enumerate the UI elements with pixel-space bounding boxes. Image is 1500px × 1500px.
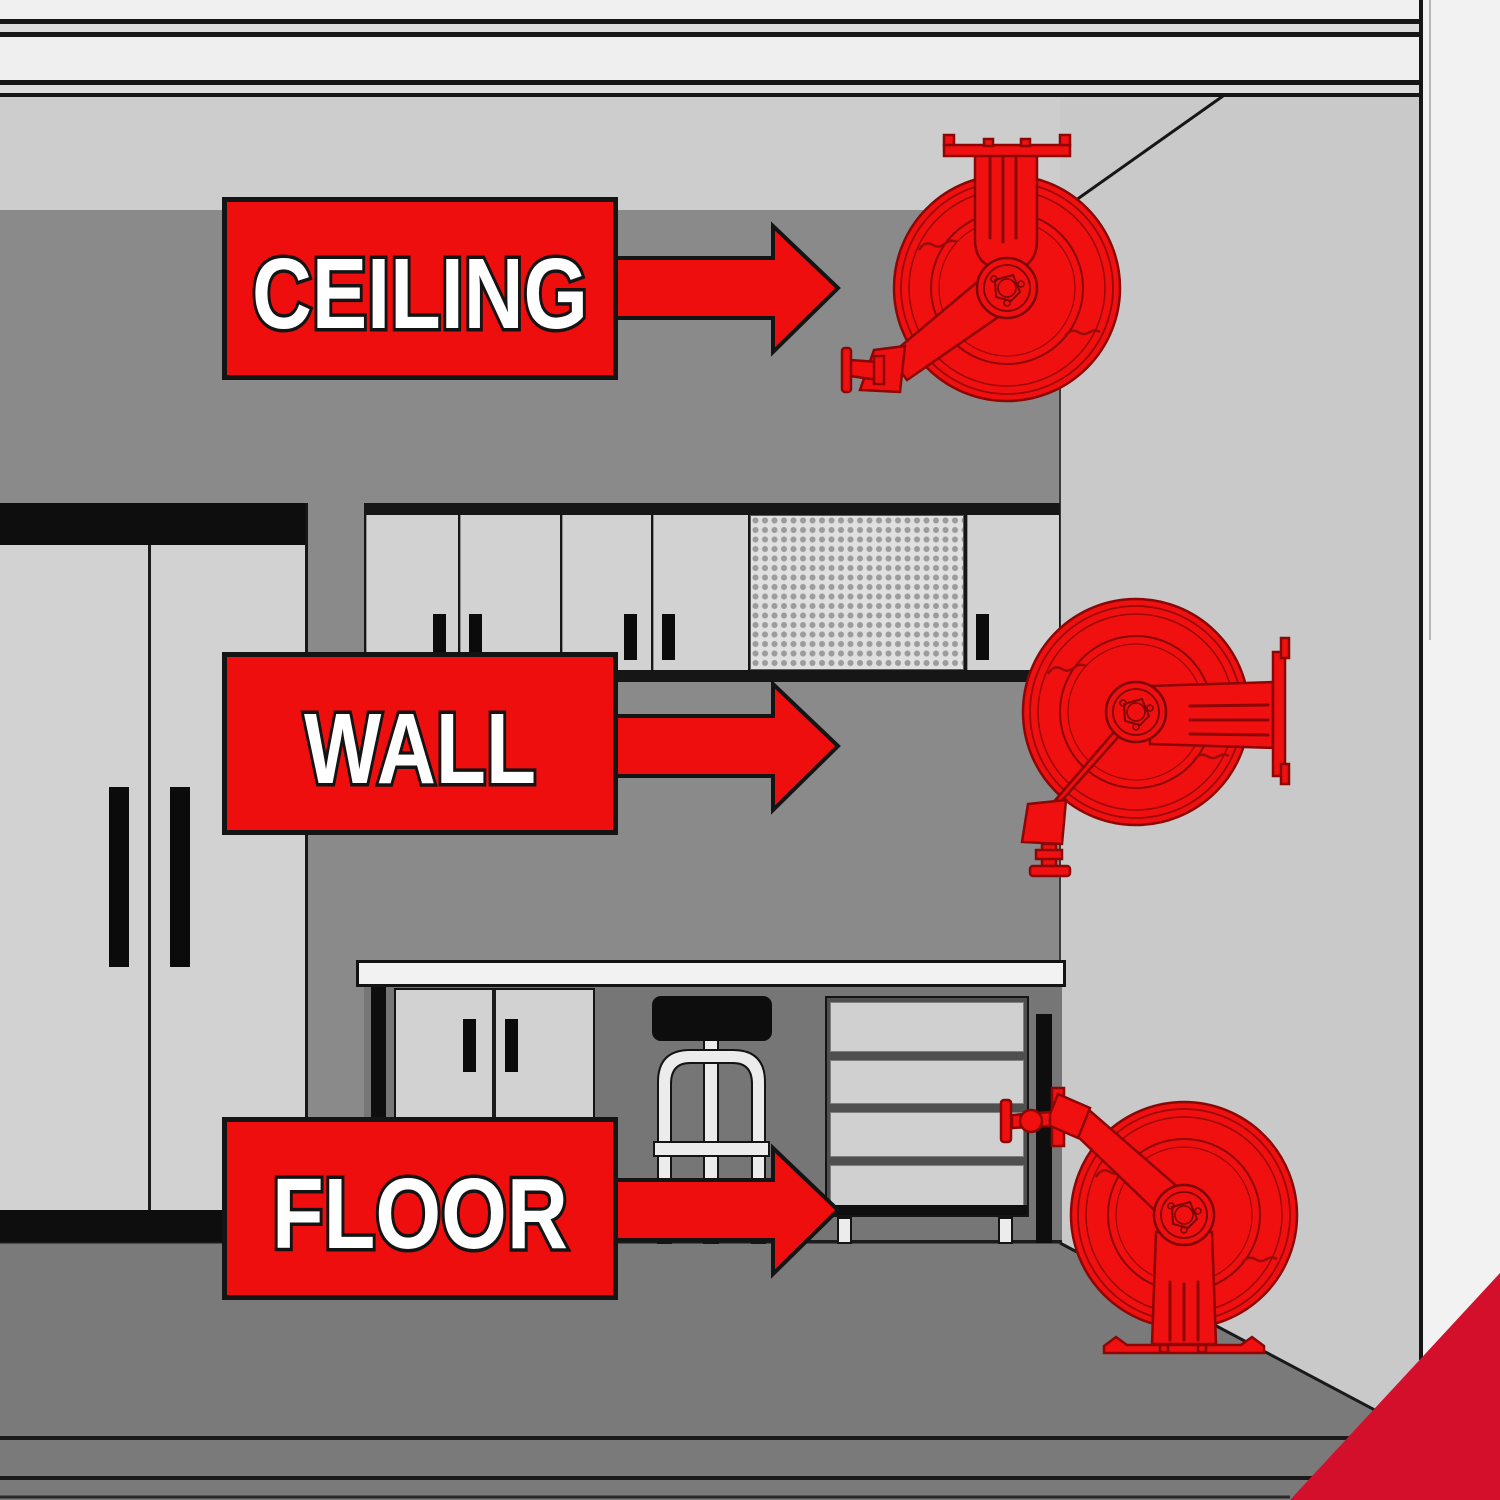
ceiling-arrow <box>610 226 838 352</box>
ceiling-trim <box>0 0 1420 97</box>
corner-red-banner <box>1290 1273 1500 1500</box>
drawer-unit-leg <box>837 1217 852 1244</box>
upper-cabinet-door <box>562 515 651 670</box>
cabinet-handle <box>505 1019 518 1072</box>
floor-diagonal-line <box>1060 1243 1420 1434</box>
cabinet-handle <box>624 614 637 660</box>
cabinet-handle <box>976 614 989 660</box>
cabinet-handle <box>463 1019 476 1072</box>
cabinet-door <box>396 990 492 1120</box>
garage-mounting-diagram: CEILING WALL FLOOR <box>0 0 1500 1500</box>
hose-guide <box>1022 800 1066 844</box>
wall-mounted-hose-reel <box>1022 599 1289 876</box>
ceiling-mount-bar <box>944 145 1070 156</box>
ceiling-corner-line <box>1062 96 1223 210</box>
reel-arm <box>1071 1110 1195 1228</box>
cabinet-handle <box>109 787 129 967</box>
ceiling-label: CEILING <box>222 197 618 380</box>
floor <box>0 1242 1420 1500</box>
drawer <box>830 1165 1024 1209</box>
ceiling-mounted-hose-reel <box>842 135 1120 401</box>
wall-mount-plate <box>1273 652 1285 776</box>
wall-label-text: WALL <box>304 693 536 805</box>
cabinet-handle <box>170 787 190 967</box>
hose-nozzle <box>850 360 878 380</box>
hose-end-cap <box>1030 866 1070 876</box>
reel-arm <box>889 268 1020 380</box>
drawer-unit-leg <box>998 1217 1013 1244</box>
bench-side-post <box>1036 1014 1052 1243</box>
wall-label: WALL <box>222 652 618 835</box>
ceiling-label-text: CEILING <box>252 238 588 350</box>
hose-nozzle <box>1042 844 1056 866</box>
upper-wall-band <box>0 97 1420 210</box>
floor-mount-feet <box>1104 1337 1264 1353</box>
drawer <box>830 1112 1024 1157</box>
ceiling-mount-stem <box>975 152 1037 268</box>
drawer <box>830 1002 1024 1052</box>
cabinet-handle <box>662 614 675 660</box>
reel-arm-fill <box>1040 699 1152 818</box>
reel-arm <box>1040 699 1152 818</box>
floor-mount-pedestal <box>1152 1232 1216 1344</box>
drawer-unit-base <box>827 1205 1027 1215</box>
cabinet-top-trim <box>0 503 305 545</box>
wall-arrow <box>610 684 838 810</box>
drawer-unit <box>825 996 1029 1217</box>
stool-seat <box>652 996 772 1041</box>
right-wall <box>1060 97 1420 1434</box>
under-counter-cabinet <box>394 988 595 1122</box>
hose-end-cap <box>842 348 851 392</box>
floor-label-text: FLOOR <box>272 1158 568 1270</box>
wall-mount-channel <box>1150 682 1273 748</box>
frame-line <box>1419 0 1423 1360</box>
perforated-mesh-panel <box>750 515 964 670</box>
hose-guide <box>860 346 905 392</box>
drawer <box>830 1060 1024 1104</box>
workbench-countertop <box>356 960 1066 987</box>
floor-label: FLOOR <box>222 1117 618 1300</box>
